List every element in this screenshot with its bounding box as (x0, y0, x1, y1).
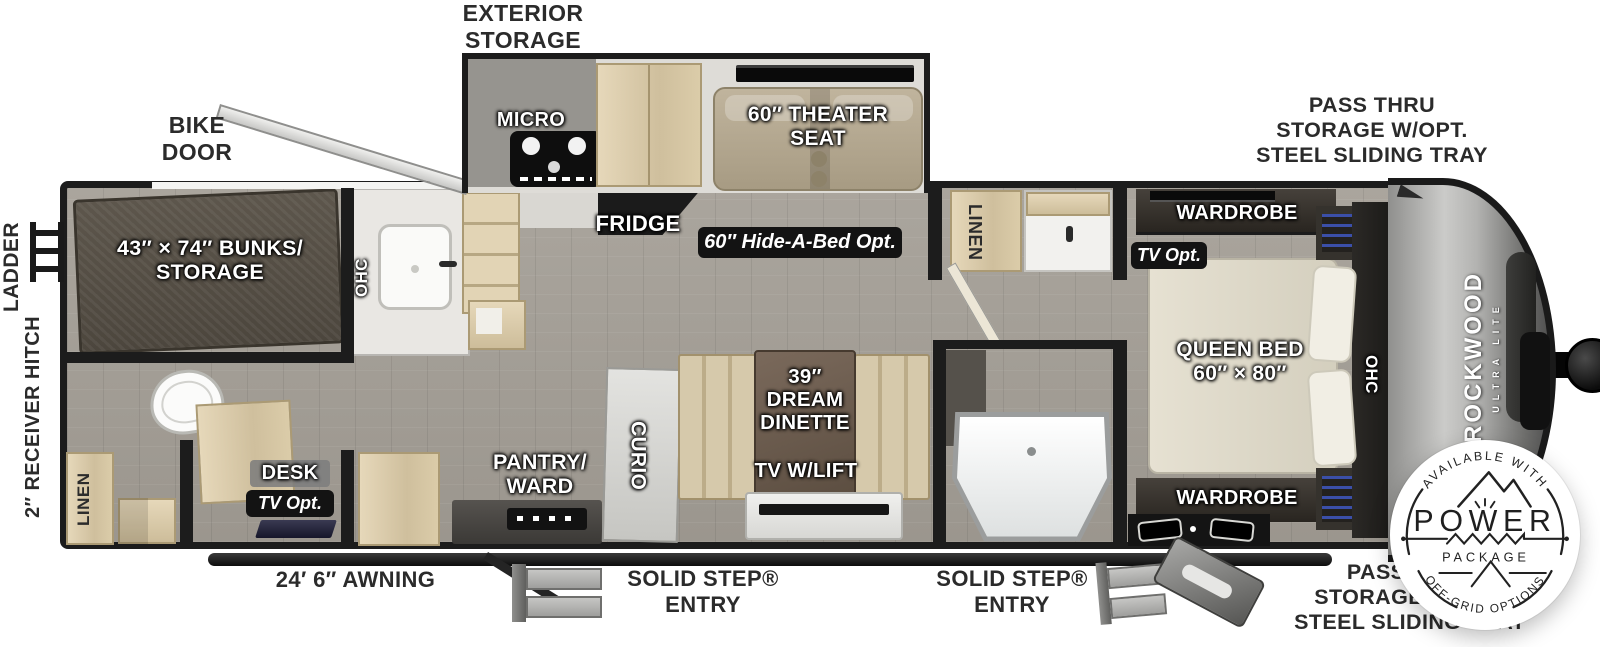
entry-front-label: SOLID STEP® ENTRY (598, 566, 808, 617)
wall-bath2-right (1113, 340, 1127, 548)
counter-tray-icon (507, 508, 587, 530)
step-tread (1110, 593, 1168, 619)
ladder-icon (26, 222, 68, 282)
badge-available-with-label: AVAILABLE WITH (1419, 449, 1550, 491)
fridge-label: FRIDGE (576, 212, 700, 237)
bath-shelf-step2 (118, 498, 148, 544)
ohc-rear-label: OHC (352, 238, 371, 318)
door-window-icon (1180, 562, 1235, 601)
tv-opt-bedroom-label: TV Opt. (1137, 245, 1201, 266)
theater-seat-label: 60″ THEATER SEAT (720, 103, 916, 150)
wall-mid-closet-right (1113, 188, 1127, 280)
wardrobe-bottom-label: WARDROBE (1142, 487, 1332, 509)
cabinet-divider (648, 65, 650, 185)
faucet-dot (1190, 526, 1196, 532)
divider-dot (1401, 537, 1406, 542)
dinette-label: 39″ DREAM DINETTE (740, 366, 870, 435)
hitch-post-icon (1520, 332, 1550, 430)
pass-thru-front-label: PASS THRU STORAGE W/OPT. STEEL SLIDING T… (1228, 93, 1516, 168)
desk-badge: DESK (250, 460, 330, 487)
tv-lift-slot-icon (759, 504, 889, 515)
linen-mid-label: LINEN (964, 196, 985, 268)
shower-icon (952, 412, 1112, 544)
floorplan-canvas: MICRO 60″ THEATER SEAT 43″ × 74″ BUNKS/ … (0, 0, 1600, 647)
wall-rear-bath (180, 440, 193, 548)
bike-door-label: BIKE DOOR (133, 112, 261, 165)
ladder-rung (30, 248, 64, 254)
bedroom-vanity-icon (1128, 514, 1270, 546)
linen-mid-cabinet (950, 190, 1022, 272)
vanity-faucet-icon (1066, 226, 1073, 242)
wall-bunkroom-mid (67, 352, 354, 363)
ladder-rung (30, 230, 64, 236)
wall-mid-closet-left (928, 188, 942, 280)
tv-opt-bedroom-badge: TV Opt. (1131, 242, 1207, 269)
badge-off-grid-label: OFF-GRID OPTIONS (1422, 573, 1548, 617)
drain-icon (411, 265, 419, 273)
brand-name: ROCKWOOD (1460, 257, 1488, 457)
svg-text:AVAILABLE WITH: AVAILABLE WITH (1419, 449, 1550, 491)
micro-label: MICRO (470, 109, 592, 131)
burner-icon (568, 137, 586, 155)
entry-rear-label: SOLID STEP® ENTRY (912, 566, 1112, 617)
faucet-icon (439, 261, 457, 267)
brand-model: ULTRA LITE (1491, 257, 1501, 457)
ladder-label: LADDER (0, 192, 24, 342)
hide-a-bed-badge: 60″ Hide-A-Bed Opt. (698, 227, 902, 258)
tv-opt-desk-badge: TV Opt. (246, 490, 334, 517)
brand-logo: ROCKWOOD ULTRA LITE (1460, 257, 1524, 457)
hitch-knob-icon (1565, 338, 1600, 393)
step-rail (512, 564, 526, 622)
curio-label: CURIO (626, 398, 650, 514)
desk-side-cabinet (358, 452, 440, 546)
power-package-badge: AVAILABLE WITH POWER PACKAGE (1390, 440, 1580, 630)
divider-dot (1564, 537, 1569, 542)
queen-bed-label: QUEEN BED 60″ × 80″ (1156, 338, 1324, 385)
entry-steps-icon (512, 564, 604, 622)
wall-bunkroom-lower (341, 450, 354, 548)
bunks-label: 43″ × 74″ BUNKS/ STORAGE (90, 236, 330, 284)
mid-vanity (1024, 190, 1112, 272)
seat-cupholder (811, 151, 827, 167)
shower-pan (957, 417, 1107, 539)
wardrobe-top-label: WARDROBE (1142, 202, 1332, 224)
laptop-icon (255, 520, 337, 538)
svg-text:OFF-GRID OPTIONS: OFF-GRID OPTIONS (1422, 573, 1548, 617)
awning-label: 24′ 6″ AWNING (248, 567, 463, 593)
stove-icon (510, 131, 602, 187)
kitchen-sink-icon (378, 224, 452, 310)
wall-bath2-top (933, 340, 1127, 349)
stove-knobs (520, 177, 592, 181)
pantry-counter (452, 500, 602, 544)
hide-a-bed-label: 60″ Hide-A-Bed Opt. (704, 231, 896, 254)
kitchen-drawers (462, 192, 520, 314)
bike-door-opening (152, 182, 464, 189)
shower-drain-icon (1027, 447, 1036, 456)
power-badge-art: AVAILABLE WITH POWER PACKAGE (1390, 440, 1580, 630)
wall-bunkroom-upper (341, 188, 354, 356)
tv-lift-label: TV W/LIFT (738, 460, 874, 483)
tv-lift-cabinet (745, 492, 903, 540)
sun-rays-icon (1476, 499, 1495, 508)
desk-label: DESK (262, 462, 319, 484)
slideout-pantry-cabinet (596, 63, 702, 187)
step-tread (526, 568, 602, 590)
pantry-label: PANTRY/ WARD (478, 450, 602, 498)
theater-tv-icon (736, 65, 914, 82)
vanity-upper-cab (1026, 192, 1110, 216)
kitchen-chair (468, 300, 526, 350)
burner-icon (548, 161, 560, 173)
exterior-storage-label: EXTERIOR STORAGE (418, 0, 628, 53)
receiver-hitch-label: 2″ RECEIVER HITCH (22, 295, 45, 540)
desk-panel (195, 400, 295, 505)
kitchen-slideout: MICRO 60″ THEATER SEAT (462, 53, 930, 193)
ohc-bedroom-label: OHC (1362, 332, 1381, 416)
burner-icon (522, 137, 540, 155)
bedroom-tv-icon (1150, 191, 1275, 202)
badge-power-label: POWER (1413, 504, 1556, 538)
seat-cupholder (811, 171, 827, 187)
tray-dots (517, 516, 573, 521)
step-tread (526, 596, 602, 618)
chair-cushion (476, 308, 502, 334)
ladder-rung (30, 266, 64, 272)
sink-bowl-icon (1209, 518, 1255, 542)
badge-package-label: PACKAGE (1442, 550, 1530, 565)
linen-rear-label: LINEN (74, 460, 94, 538)
tv-opt-desk-label: TV Opt. (258, 493, 322, 514)
wall-bath2-left (933, 340, 946, 548)
